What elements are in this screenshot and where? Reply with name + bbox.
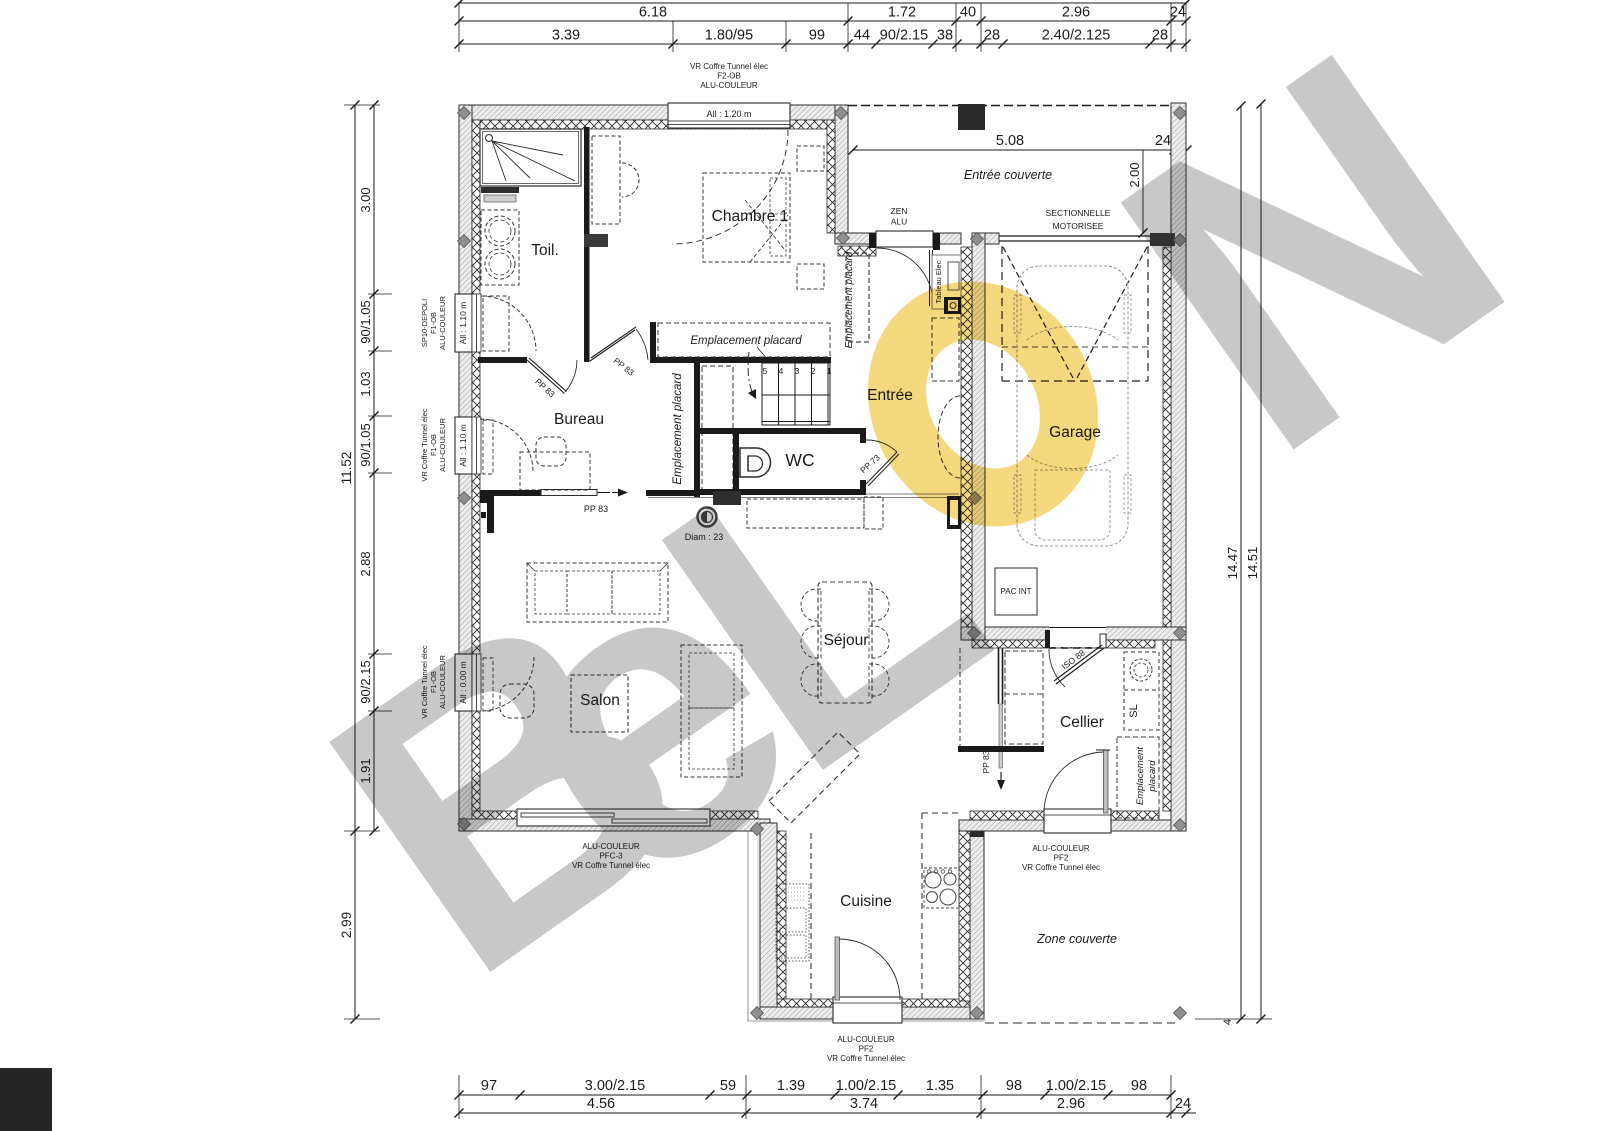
svg-text:1.72: 1.72 — [888, 5, 916, 21]
svg-text:Bureau: Bureau — [554, 411, 604, 428]
svg-text:11.52: 11.52 — [339, 452, 354, 485]
svg-text:3.00/2.15: 3.00/2.15 — [585, 1078, 645, 1094]
svg-text:VR Coffre Tunnel élec: VR Coffre Tunnel élec — [690, 62, 768, 71]
svg-text:38: 38 — [937, 28, 953, 44]
svg-text:ALU-COULEUR: ALU-COULEUR — [837, 1035, 895, 1044]
svg-text:VR Coffre Tunnel élec: VR Coffre Tunnel élec — [1022, 863, 1100, 872]
svg-text:2.96: 2.96 — [1057, 1096, 1085, 1112]
svg-text:90/1.05: 90/1.05 — [358, 423, 373, 466]
svg-text:4: 4 — [1222, 1019, 1234, 1025]
svg-text:28: 28 — [1152, 28, 1168, 44]
svg-text:Emplacement placard: Emplacement placard — [690, 335, 802, 347]
svg-text:ALU-COULEUR: ALU-COULEUR — [438, 418, 447, 472]
svg-text:44: 44 — [854, 28, 870, 44]
svg-text:Cellier: Cellier — [1060, 714, 1104, 731]
svg-text:1.80/95: 1.80/95 — [705, 28, 753, 44]
svg-text:14.51: 14.51 — [1245, 547, 1260, 580]
svg-text:2.96: 2.96 — [1062, 5, 1090, 21]
svg-text:ALU-COULEUR: ALU-COULEUR — [438, 296, 447, 350]
svg-text:ZEN: ZEN — [891, 206, 908, 216]
svg-text:All : 1.20 m: All : 1.20 m — [706, 109, 751, 119]
svg-text:ALU-COULEUR: ALU-COULEUR — [1032, 844, 1090, 853]
svg-text:F1-OB: F1-OB — [429, 434, 438, 456]
svg-text:All : 1.10 m: All : 1.10 m — [458, 424, 468, 467]
svg-text:3.39: 3.39 — [552, 28, 580, 44]
svg-text:placard: placard — [1147, 760, 1158, 793]
svg-text:24: 24 — [1175, 1096, 1191, 1112]
svg-text:2.99: 2.99 — [339, 912, 354, 938]
svg-text:Cuisine: Cuisine — [840, 893, 892, 910]
svg-text:2.40/2.125: 2.40/2.125 — [1042, 28, 1111, 44]
svg-text:All : 1.10 m: All : 1.10 m — [458, 302, 468, 345]
svg-text:Toil.: Toil. — [531, 242, 559, 259]
svg-text:1.00/2.15: 1.00/2.15 — [836, 1078, 896, 1094]
svg-text:90/2.15: 90/2.15 — [880, 28, 928, 44]
svg-text:24: 24 — [1170, 5, 1186, 21]
svg-text:ALU: ALU — [891, 217, 908, 227]
svg-text:97: 97 — [481, 1078, 497, 1094]
svg-text:1.03: 1.03 — [358, 371, 373, 396]
svg-text:F1-OB: F1-OB — [429, 312, 438, 334]
svg-text:Chambre 1: Chambre 1 — [712, 208, 789, 225]
svg-text:40: 40 — [960, 5, 976, 21]
svg-text:Zone couverte: Zone couverte — [1036, 932, 1117, 946]
svg-text:MOTORISEE: MOTORISEE — [1053, 221, 1104, 231]
svg-text:Emplacement placard: Emplacement placard — [844, 251, 855, 348]
svg-text:14.47: 14.47 — [1225, 547, 1240, 580]
svg-text:3.00: 3.00 — [358, 187, 373, 212]
svg-text:98: 98 — [1131, 1078, 1147, 1094]
svg-text:4.56: 4.56 — [587, 1096, 615, 1112]
svg-text:6.18: 6.18 — [639, 5, 667, 21]
svg-text:1: 1 — [827, 366, 832, 376]
svg-text:Emplacement: Emplacement — [1135, 747, 1146, 805]
svg-text:ALU-COULEUR: ALU-COULEUR — [700, 81, 758, 90]
svg-text:99: 99 — [809, 28, 825, 44]
svg-text:28: 28 — [984, 28, 1000, 44]
svg-text:SL: SL — [1128, 704, 1140, 717]
svg-text:5.08: 5.08 — [996, 133, 1024, 149]
svg-text:PF2: PF2 — [1054, 854, 1069, 863]
svg-text:VR Coffre Tunnel élec: VR Coffre Tunnel élec — [827, 1054, 905, 1063]
svg-text:1.39: 1.39 — [777, 1078, 805, 1094]
svg-text:1.00/2.15: 1.00/2.15 — [1046, 1078, 1106, 1094]
svg-text:PAC INT: PAC INT — [1001, 587, 1032, 596]
svg-text:PF2: PF2 — [859, 1045, 874, 1054]
svg-text:F2-OB: F2-OB — [717, 72, 741, 81]
svg-text:1.35: 1.35 — [926, 1078, 954, 1094]
svg-text:59: 59 — [720, 1078, 736, 1094]
svg-text:2.88: 2.88 — [358, 551, 373, 576]
svg-text:Entrée couverte: Entrée couverte — [964, 168, 1052, 182]
svg-text:98: 98 — [1006, 1078, 1022, 1094]
svg-text:3.74: 3.74 — [850, 1096, 878, 1112]
svg-text:90/1.05: 90/1.05 — [358, 300, 373, 343]
svg-text:VR Coffre Tunnel élec: VR Coffre Tunnel élec — [420, 408, 429, 481]
svg-text:SP10-DEPOLI: SP10-DEPOLI — [420, 299, 429, 347]
